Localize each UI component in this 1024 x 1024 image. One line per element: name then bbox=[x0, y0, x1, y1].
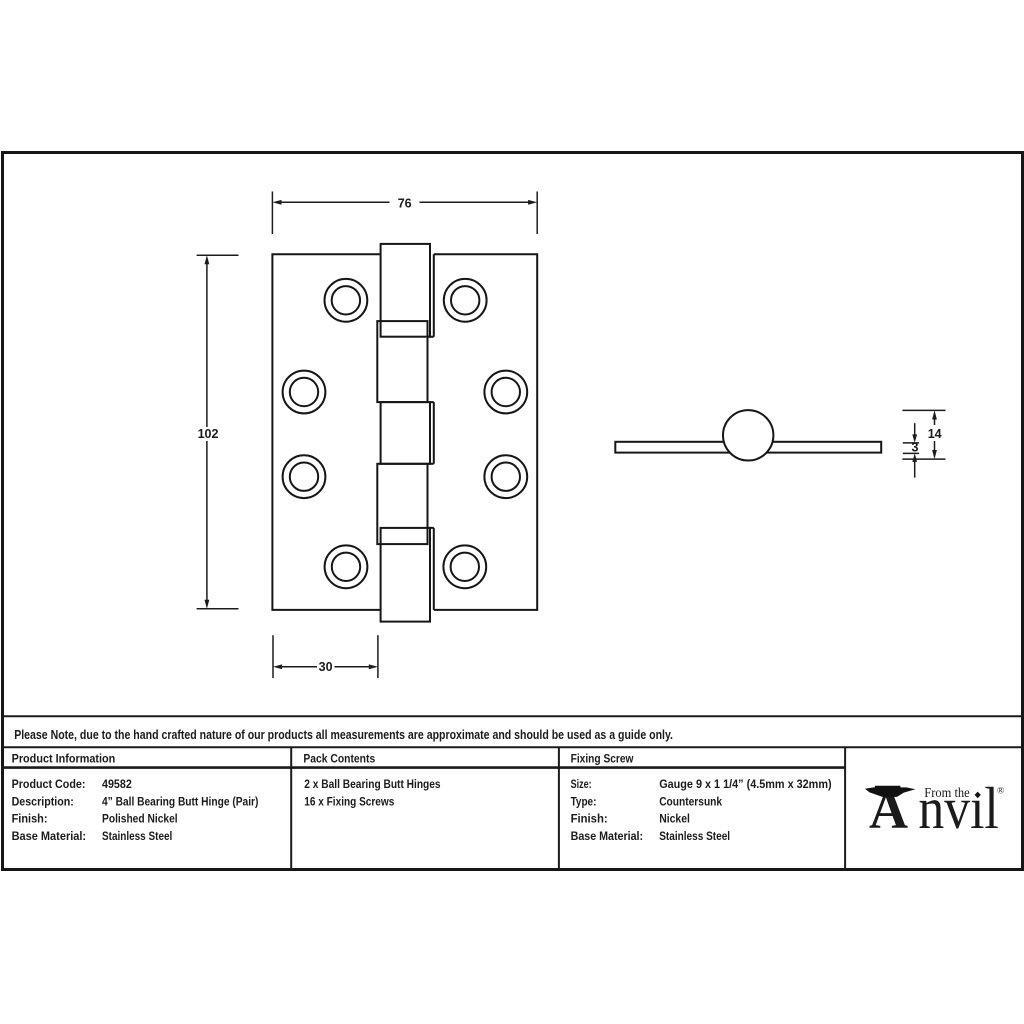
svg-text:49582: 49582 bbox=[102, 777, 132, 791]
svg-text:Gauge 9 x 1 1/4” (4.5mm x 32mm: Gauge 9 x 1 1/4” (4.5mm x 32mm) bbox=[659, 777, 831, 791]
svg-text:Base Material:: Base Material: bbox=[12, 829, 87, 843]
svg-text:76: 76 bbox=[398, 196, 412, 210]
svg-text:30: 30 bbox=[319, 660, 333, 674]
svg-text:Product Code:: Product Code: bbox=[12, 777, 86, 791]
svg-text:®: ® bbox=[997, 785, 1004, 796]
svg-text:From the: From the bbox=[924, 785, 969, 800]
svg-text:Countersunk: Countersunk bbox=[659, 794, 722, 808]
svg-text:Stainless Steel: Stainless Steel bbox=[659, 829, 730, 843]
svg-text:4” Ball Bearing Butt Hinge (Pa: 4” Ball Bearing Butt Hinge (Pair) bbox=[102, 794, 258, 808]
svg-text:14: 14 bbox=[928, 427, 942, 441]
svg-text:Type:: Type: bbox=[571, 794, 597, 808]
svg-text:Nickel: Nickel bbox=[659, 811, 690, 825]
svg-text:Finish:: Finish: bbox=[571, 811, 608, 825]
svg-text:Base Material:: Base Material: bbox=[571, 829, 644, 843]
svg-text:102: 102 bbox=[198, 427, 219, 441]
svg-text:2 x Ball Bearing Butt Hinges: 2 x Ball Bearing Butt Hinges bbox=[304, 777, 441, 791]
svg-text:3: 3 bbox=[912, 440, 919, 454]
svg-text:Stainless Steel: Stainless Steel bbox=[102, 829, 172, 843]
svg-text:Fixing Screw: Fixing Screw bbox=[571, 751, 634, 765]
svg-text:Polished Nickel: Polished Nickel bbox=[102, 811, 178, 825]
svg-text:Size:: Size: bbox=[571, 777, 592, 791]
svg-text:Pack Contents: Pack Contents bbox=[303, 751, 375, 765]
svg-text:Please Note, due to the hand c: Please Note, due to the hand crafted nat… bbox=[14, 728, 673, 742]
svg-text:Description:: Description: bbox=[12, 794, 74, 808]
svg-text:16 x Fixing Screws: 16 x Fixing Screws bbox=[304, 794, 394, 808]
svg-text:Product Information: Product Information bbox=[12, 751, 116, 765]
svg-text:Finish:: Finish: bbox=[12, 811, 48, 825]
